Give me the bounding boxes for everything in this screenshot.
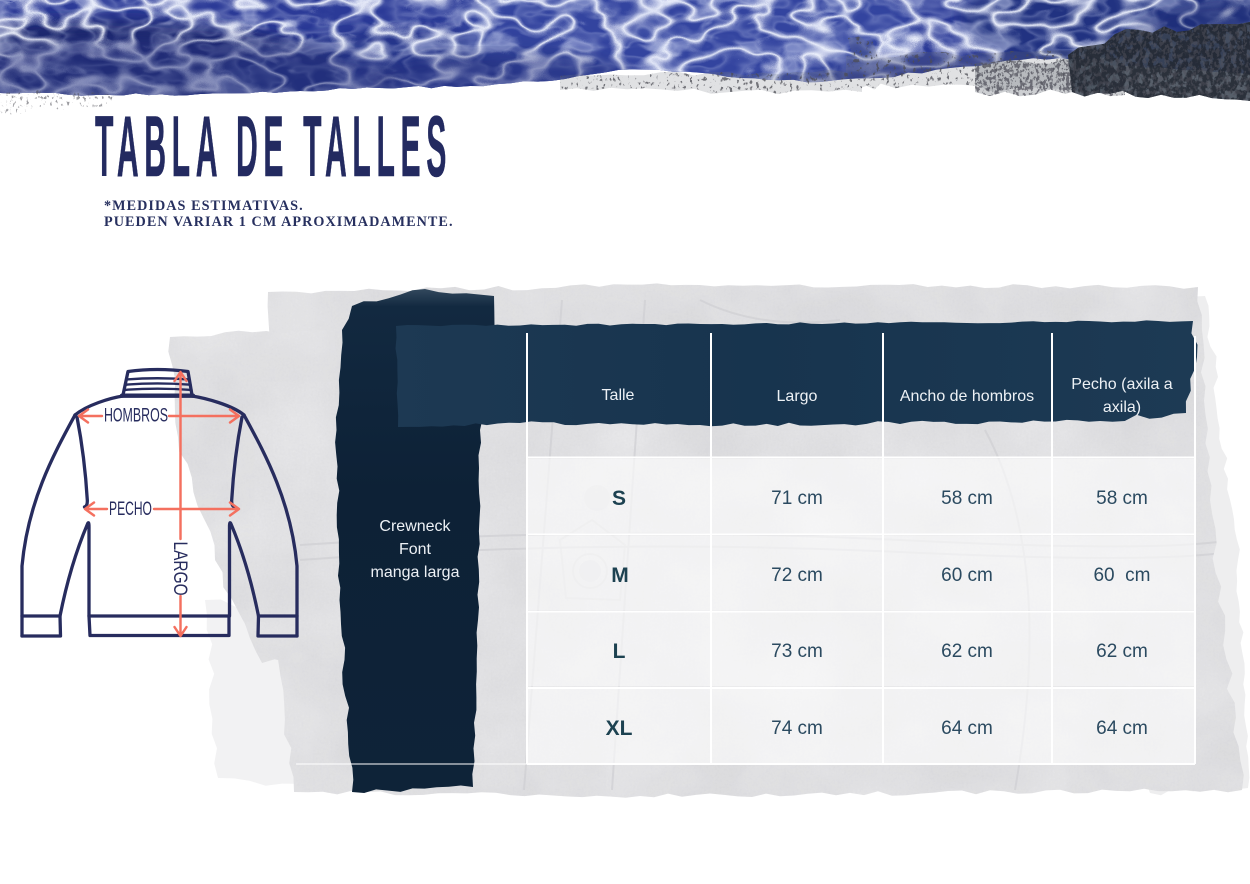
svg-text:62 cm: 62 cm [1096, 641, 1148, 662]
svg-text:Pecho (axila a: Pecho (axila a [1071, 376, 1172, 393]
svg-text:XL: XL [606, 717, 633, 740]
svg-text:Font: Font [399, 541, 432, 558]
svg-text:58 cm: 58 cm [941, 488, 993, 509]
svg-text:58 cm: 58 cm [1096, 488, 1148, 509]
svg-text:M: M [611, 564, 629, 587]
svg-text:S: S [612, 487, 626, 510]
svg-text:60 cm: 60 cm [1093, 565, 1150, 586]
svg-text:72 cm: 72 cm [771, 565, 823, 586]
svg-text:Talle: Talle [602, 387, 635, 404]
svg-text:axila): axila) [1103, 399, 1141, 416]
svg-text:L: L [613, 640, 626, 663]
svg-text:LARGO: LARGO [169, 542, 191, 596]
svg-text:Ancho de hombros: Ancho de hombros [900, 388, 1034, 405]
svg-text:64 cm: 64 cm [1096, 718, 1148, 739]
svg-text:Largo: Largo [777, 388, 818, 405]
svg-text:71 cm: 71 cm [771, 488, 823, 509]
svg-text:PUEDEN VARIAR 1 CM APROXIMADAM: PUEDEN VARIAR 1 CM APROXIMADAMENTE. [104, 214, 454, 230]
svg-text:*MEDIDAS ESTIMATIVAS.: *MEDIDAS ESTIMATIVAS. [104, 198, 304, 214]
svg-text:manga larga: manga larga [371, 564, 460, 581]
svg-text:60 cm: 60 cm [941, 565, 993, 586]
svg-text:TABLA DE TALLES: TABLA DE TALLES [95, 99, 452, 195]
svg-text:62 cm: 62 cm [941, 641, 993, 662]
svg-text:64 cm: 64 cm [941, 718, 993, 739]
svg-text:PECHO: PECHO [109, 497, 152, 519]
svg-text:74 cm: 74 cm [771, 718, 823, 739]
svg-text:HOMBROS: HOMBROS [104, 404, 168, 426]
svg-text:Crewneck: Crewneck [379, 518, 451, 535]
svg-text:73 cm: 73 cm [771, 641, 823, 662]
